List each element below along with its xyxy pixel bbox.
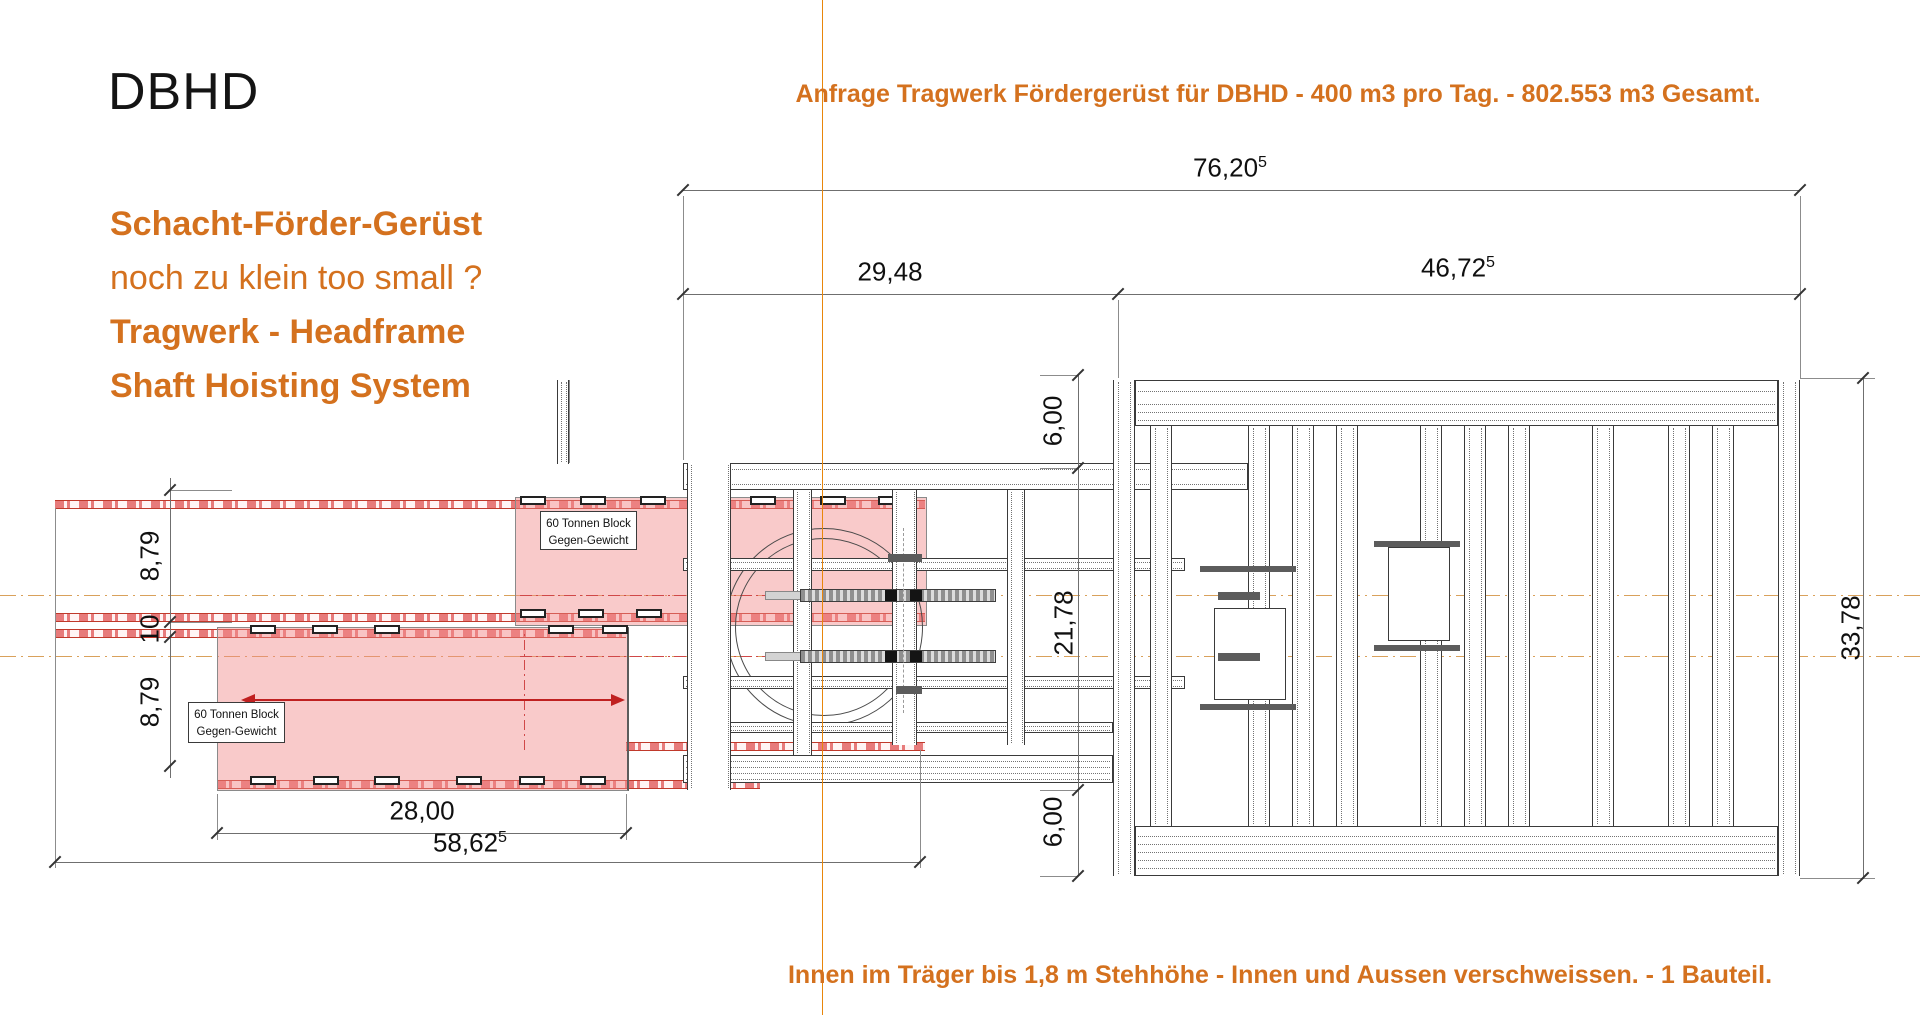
column-flange-line: [1341, 428, 1342, 824]
dim-left-span-value: 29,48: [857, 257, 922, 287]
counterweight-rail: [626, 742, 925, 751]
dimension-line-horizontal: [217, 833, 626, 834]
beam-chord-line: [686, 680, 1182, 681]
hoist-rail: [800, 650, 996, 663]
tower-column: [1007, 490, 1025, 745]
column-flange-line: [1783, 382, 1784, 874]
counterweight-label-lower: 60 Tonnen Block Gegen-Gewicht: [188, 702, 285, 743]
band-chord-line: [1138, 844, 1775, 845]
tower-beam: [683, 755, 1113, 783]
drawing-canvas: 60 Tonnen Block Gegen-Gewicht 60 Tonnen …: [0, 0, 1920, 1015]
rail-clip: [640, 496, 666, 505]
page-title: Anfrage Tragwerk Fördergerüst für DBHD -…: [795, 80, 1760, 109]
extension-line: [683, 196, 684, 460]
attachment-bar: [1374, 645, 1460, 651]
extension-stub: [1040, 876, 1078, 877]
rail-clip: [580, 776, 606, 785]
beam-chord-line: [686, 562, 1182, 563]
column-flange-line: [1481, 428, 1482, 824]
frame-column: [1150, 426, 1172, 826]
frame-column: [1464, 426, 1486, 826]
frame-top-band: [1135, 380, 1778, 426]
column-flange-line: [1118, 382, 1119, 874]
extension-stub: [170, 490, 232, 491]
rail-clip: [312, 625, 338, 634]
column-flange-line: [1729, 428, 1730, 824]
frame-column: [1336, 426, 1358, 826]
column-flange-line: [1469, 428, 1470, 824]
rail-clip: [750, 496, 776, 505]
frame-column: [1592, 426, 1614, 826]
left-text-block: Schacht-Förder-Gerüst noch zu klein too …: [110, 197, 482, 413]
dimension-line-horizontal: [683, 294, 1118, 295]
dim-counterweight-travel-value: 58,62: [433, 828, 498, 858]
structure-layer: [0, 0, 1920, 1015]
hoist-rail-block: [910, 590, 922, 601]
dim-right-span: 46,725: [1421, 253, 1495, 284]
extension-stub: [170, 622, 232, 623]
rail-clip: [548, 625, 574, 634]
column-flange-line: [561, 382, 562, 462]
rail-clip: [578, 609, 604, 618]
column-flange-line: [1167, 428, 1168, 824]
counterweight-label-upper: 60 Tonnen Block Gegen-Gewicht: [540, 511, 637, 550]
hoist-rail-cap: [765, 591, 803, 600]
hoist-rail-block: [885, 651, 897, 662]
column-flange-line: [914, 492, 915, 743]
attachment-bar: [1200, 566, 1296, 572]
rail-clip: [250, 776, 276, 785]
column-flange-line: [1155, 428, 1156, 824]
dim-right-span-value: 46,72: [1421, 253, 1486, 283]
dim-block-width: 28,00: [389, 796, 454, 827]
extension-line: [1118, 300, 1119, 378]
dim-counterweight-travel: 58,625: [433, 828, 507, 859]
rail-clip: [250, 625, 276, 634]
dim-rail-lower: 8,79: [135, 677, 166, 728]
frame-column: [1712, 426, 1734, 826]
dim-left-span: 29,48: [857, 257, 922, 288]
band-chord-line: [1138, 404, 1775, 405]
column-flange-line: [1685, 428, 1686, 824]
rail-clip: [580, 496, 606, 505]
frame-column: [1113, 380, 1135, 876]
column-flange-line: [1130, 382, 1131, 874]
column-flange-line: [1609, 428, 1610, 824]
frame-column: [1508, 426, 1530, 826]
logo-dbhd: DBHD: [108, 62, 259, 122]
counterweight-label-line2: Gegen-Gewicht: [189, 724, 284, 741]
tower-column: [687, 463, 731, 790]
column-flange-line: [1011, 492, 1012, 743]
dimension-line-horizontal: [683, 190, 1800, 191]
band-chord-line: [1138, 412, 1775, 413]
rail-clip: [636, 609, 662, 618]
tower-beam: [683, 558, 1185, 571]
left-line-3: Tragwerk - Headframe: [110, 305, 482, 359]
extension-stub: [1040, 375, 1078, 376]
rail-clamp: [1218, 653, 1260, 661]
beam-chord-line: [686, 767, 1110, 768]
tower-column: [793, 490, 812, 755]
column-flange-line: [1309, 428, 1310, 824]
rail-clip: [519, 776, 545, 785]
dim-total-width-value: 76,20: [1193, 153, 1258, 183]
dim-overall-height: 33,78: [1836, 595, 1867, 660]
rail-clamp: [896, 686, 922, 694]
dim-mid-height: 21,78: [1049, 590, 1080, 655]
beam-chord-line: [686, 773, 1110, 774]
travel-arrow-line: [247, 699, 617, 701]
beam-chord-line: [686, 686, 1182, 687]
column-flange-line: [1673, 428, 1674, 824]
band-chord-line: [1138, 420, 1775, 421]
rail-clamp: [888, 554, 922, 562]
cabin-rect: [1388, 547, 1450, 641]
extension-line: [569, 380, 570, 463]
hoist-rail-cap: [765, 652, 803, 661]
column-flange-line: [896, 492, 897, 743]
column-flange-line: [1353, 428, 1354, 824]
attachment-bar: [1200, 704, 1296, 710]
column-flange-line: [1525, 428, 1526, 824]
rail-clip: [456, 776, 482, 785]
column-flange-line: [691, 465, 692, 788]
rail-clip: [374, 776, 400, 785]
beam-chord-line: [686, 568, 1182, 569]
column-flange-line: [809, 492, 810, 753]
rail-clip: [820, 496, 846, 505]
dim-total-width: 76,205: [1193, 153, 1267, 184]
column-flange-line: [1717, 428, 1718, 824]
dimension-line-vertical: [170, 478, 171, 778]
rail-clip: [520, 496, 546, 505]
left-line-4: Shaft Hoisting System: [110, 359, 482, 413]
dim-rail-gap: 10: [135, 615, 166, 644]
extension-line: [920, 750, 921, 868]
dim-right-span-sup: 5: [1486, 253, 1495, 271]
column-flange-line: [797, 492, 798, 753]
extension-stub: [1040, 790, 1078, 791]
frame-bottom-band: [1135, 826, 1778, 876]
frame-column: [1668, 426, 1690, 826]
extension-line: [1800, 196, 1801, 378]
dim-bottom-height: 6,00: [1038, 797, 1069, 848]
band-chord-line: [1138, 860, 1775, 861]
hoist-rail-block: [885, 590, 897, 601]
dimension-line-horizontal: [1118, 294, 1800, 295]
rail-clip: [374, 625, 400, 634]
frame-column: [1292, 426, 1314, 826]
counterweight-label-line1: 60 Tonnen Block: [541, 516, 636, 533]
tower-beam: [683, 676, 1185, 689]
band-chord-line: [1138, 852, 1775, 853]
shaft-axis-line: [822, 0, 823, 1015]
travel-arrow-head-right: [611, 694, 625, 706]
beam-chord-line: [686, 779, 1110, 780]
frame-column: [1778, 380, 1800, 876]
column-flange-line: [1022, 492, 1023, 743]
rail-clamp: [1218, 592, 1260, 600]
extension-line: [55, 508, 56, 868]
column-flange-line: [1513, 428, 1514, 824]
column-flange-line: [728, 465, 729, 788]
column-flange-line: [1795, 382, 1796, 874]
rail-clip: [602, 625, 628, 634]
footer-note: Innen im Träger bis 1,8 m Stehhöhe - Inn…: [788, 961, 1772, 990]
left-line-2: noch zu klein too small ?: [110, 251, 482, 305]
column-flange-line: [566, 382, 567, 462]
hoist-rail-block: [910, 651, 922, 662]
tower-column: [557, 380, 569, 464]
dim-top-height: 6,00: [1038, 396, 1069, 447]
left-line-1: Schacht-Förder-Gerüst: [110, 197, 482, 251]
extension-stub: [1040, 468, 1078, 469]
band-chord-line: [1138, 391, 1775, 392]
rail-clip: [520, 609, 546, 618]
counterweight-label-line1: 60 Tonnen Block: [189, 707, 284, 724]
band-chord-line: [1138, 836, 1775, 837]
rail-clip: [313, 776, 339, 785]
band-chord-line: [1138, 868, 1775, 869]
hoist-rail: [800, 589, 996, 602]
red-centerline-vertical: [524, 632, 525, 750]
dimension-line-horizontal: [55, 862, 920, 863]
dim-total-width-sup: 5: [1258, 153, 1267, 171]
counterweight-label-line2: Gegen-Gewicht: [541, 533, 636, 550]
column-flange-line: [1297, 428, 1298, 824]
column-flange-line: [1597, 428, 1598, 824]
dim-rail-upper: 8,79: [135, 531, 166, 582]
beam-chord-line: [686, 761, 1110, 762]
dim-counterweight-travel-sup: 5: [498, 828, 507, 846]
